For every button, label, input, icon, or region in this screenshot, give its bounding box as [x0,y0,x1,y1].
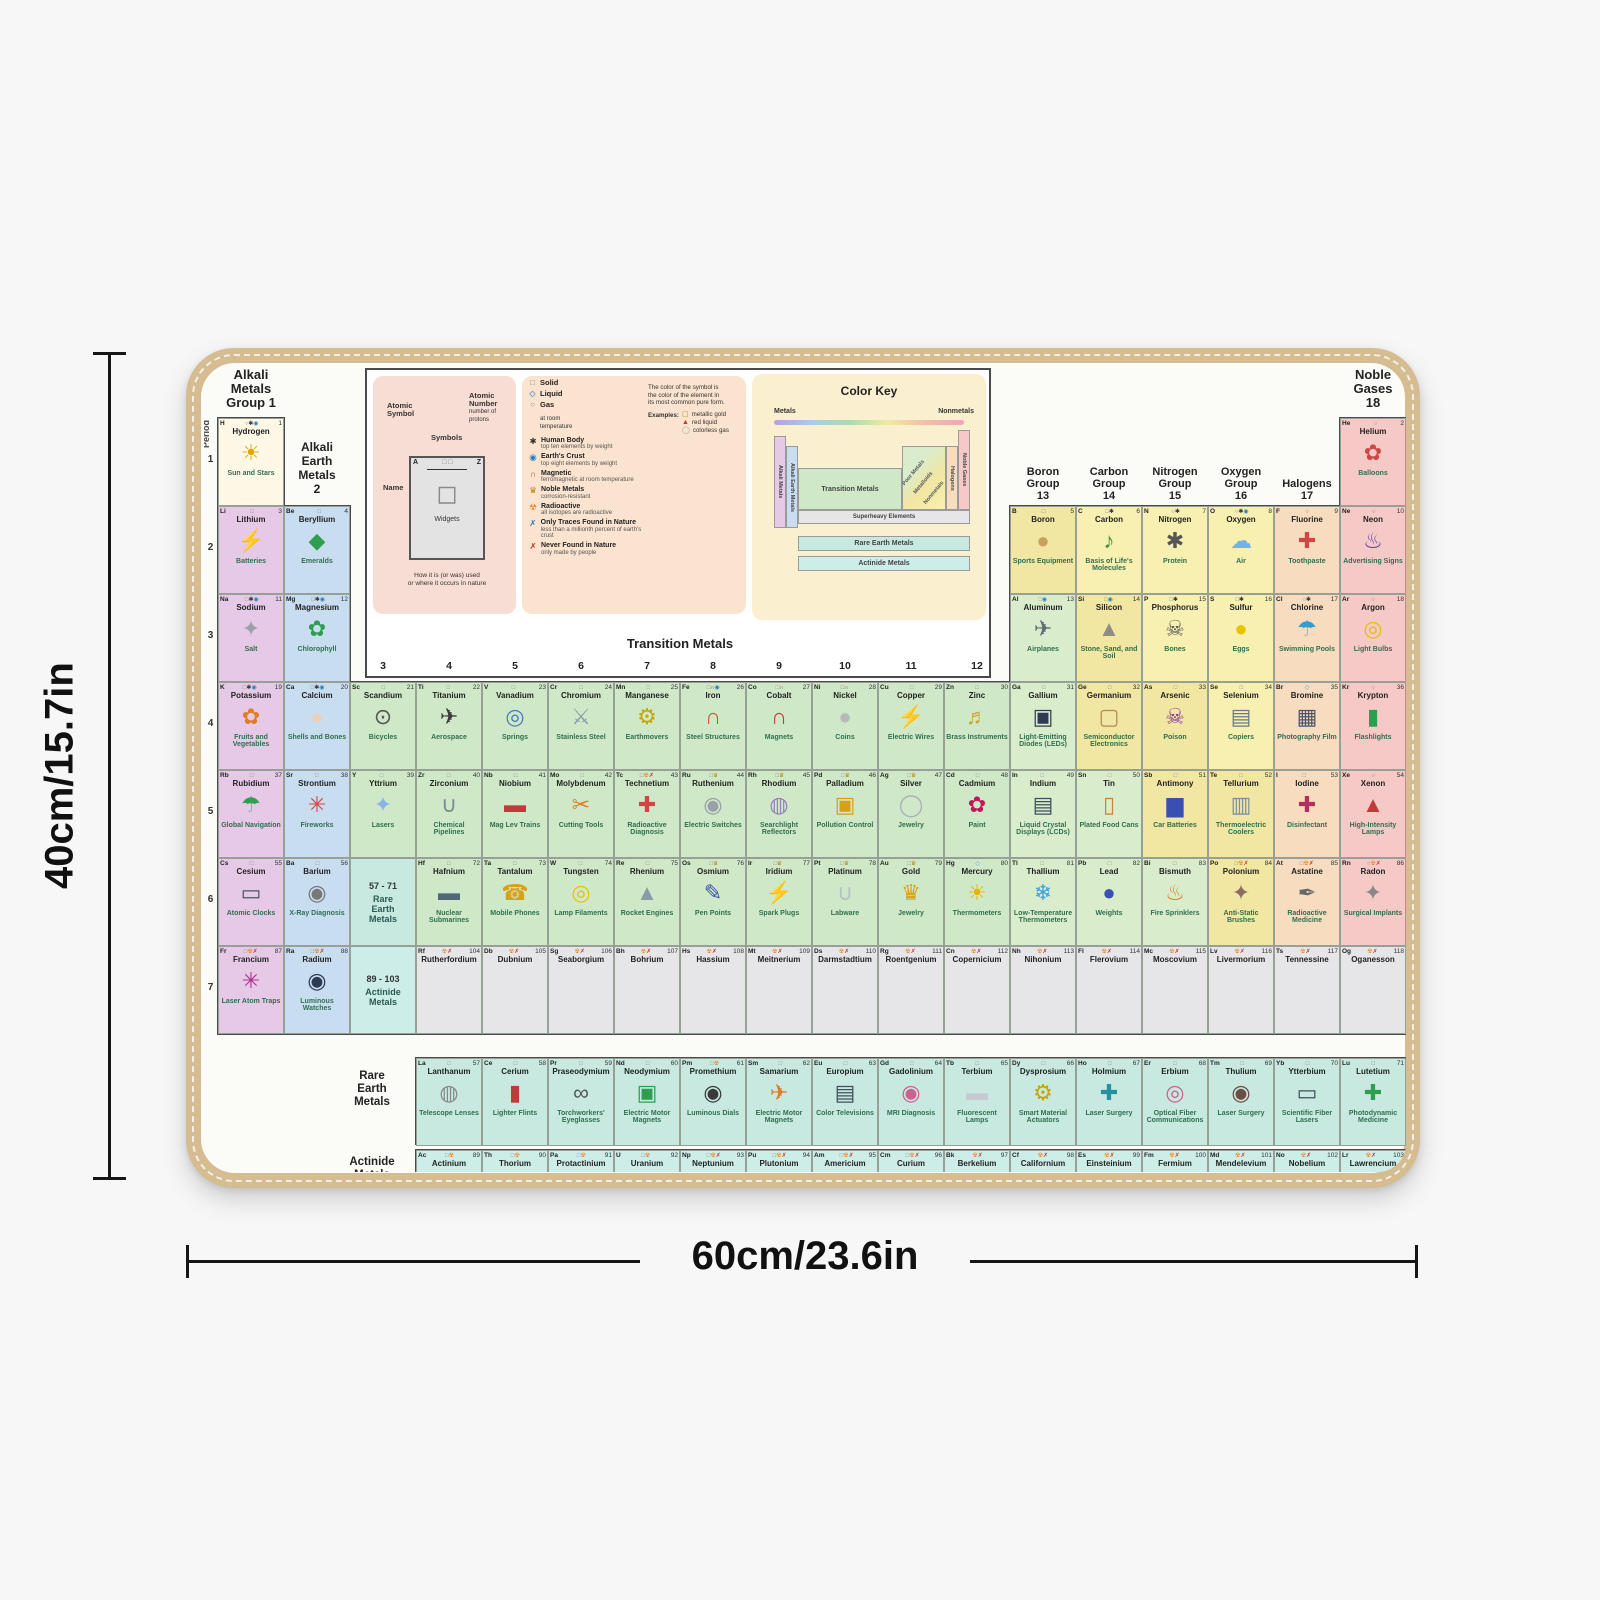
element-cell-Pm: Pm□☢61Promethium◉Luminous Dials [680,1058,746,1146]
ck-superheavy: Superheavy Elements [798,510,970,524]
element-picture-As: ☠ [1144,701,1206,733]
element-cell-Fm: Fm☢✗100Fermium▯ [1142,1150,1208,1172]
solid-icon: □ [528,378,537,387]
element-cell-Am: Am□☢✗95Americium▤ [812,1150,878,1172]
actinide-side-label: Actinide Metals [332,1156,412,1172]
atomic-symbol-label: Atomic Symbol [387,402,414,417]
element-cell-Rf: Rf☢✗104Rutherfordium [416,946,482,1034]
legend-item-6: ✗Never Found in Natureonly made by peopl… [528,542,652,556]
element-picture-Xe: ▲ [1342,789,1404,821]
range-cell-lan: 57 - 71Rare Earth Metals [350,858,416,946]
element-cell-Gd: Gd□64Gadolinium◉MRI Diagnosis [878,1058,944,1146]
element-picture-P: ☠ [1144,613,1206,645]
element-cell-He: He○2Helium✿Balloons [1340,418,1406,506]
element-cell-Db: Db☢✗105Dubnium [482,946,548,1034]
element-cell-Ga: Ga□31Gallium▣Light-Emitting Diodes (LEDs… [1010,682,1076,770]
element-cell-Ni: Ni□∩28Nickel●Coins [812,682,878,770]
liquid-icon: ◇ [528,389,537,398]
element-cell-Sr: Sr□38Strontium✳Fireworks [284,770,350,858]
element-picture-Sn: ▯ [1078,789,1140,821]
element-picture-Nb: ▬ [484,789,546,821]
element-cell-Md: Md☢✗101Mendelevium▯ [1208,1150,1274,1172]
element-picture-Cf: ▲ [1012,1169,1074,1173]
transition-metals-label: Transition Metals [520,636,840,651]
element-picture-Yb: ▭ [1276,1077,1338,1109]
element-picture-Co: ∩ [748,701,810,733]
element-cell-Tm: Tm□69Thulium◉Laser Surgery [1208,1058,1274,1146]
element-cell-Rh: Rh□♛45Rhodium◍Searchlight Reflectors [746,770,812,858]
element-cell-Yb: Yb□70Ytterbium▭Scientific Fiber Lasers [1274,1058,1340,1146]
height-dimension-cap-top [93,352,126,355]
element-picture-Kr: ▮ [1342,701,1404,733]
element-cell-Co: Co□∩27Cobalt∩Magnets [746,682,812,770]
legend-item-icon: ♛ [528,486,538,500]
period-number-1: 1 [204,454,217,465]
element-cell-Sc: Sc□21Scandium⊙Bicycles [350,682,416,770]
element-cell-Sm: Sm□62Samarium✈Electric Motor Magnets [746,1058,812,1146]
element-picture-Al: ✈ [1012,613,1074,645]
element-cell-N: N○✱7Nitrogen✱Protein [1142,506,1208,594]
element-cell-Es: Es☢✗99Einsteinium▯ [1076,1150,1142,1172]
color-key-metals: Metals [774,408,796,415]
group-number-9: 9 [746,660,812,672]
group-number-11: 11 [878,660,944,672]
element-cell-Ru: Ru□♛44Ruthenium◉Electric Switches [680,770,746,858]
group-number-7: 7 [614,660,680,672]
element-picture-Cu: ⚡ [880,701,942,733]
element-cell-Cf: Cf☢✗98Californium▲ [1010,1150,1076,1172]
element-cell-Cl: Cl○✱17Chlorine☂Swimming Pools [1274,594,1340,682]
group-number-6: 6 [548,660,614,672]
element-cell-Pb: Pb□82Lead●Weights [1076,858,1142,946]
color-key-title: Color Key [752,384,986,398]
group-header-13: Boron Group 13 [1010,450,1076,502]
element-picture-Ne: ♨ [1342,525,1404,557]
element-picture-S: ● [1210,613,1272,645]
element-picture-Tc: ✚ [616,789,678,821]
element-cell-Rn: Rn○☢✗86Radon✦Surgical Implants [1340,858,1406,946]
element-picture-Pu: ☁ [748,1169,810,1173]
element-cell-Se: Se□34Selenium▤Copiers [1208,682,1274,770]
element-picture-Ni: ● [814,701,876,733]
element-cell-U: U□☢92Uranium▯ [614,1150,680,1172]
element-cell-Lu: Lu□71Lutetium✚Photodynamic Medicine [1340,1058,1406,1146]
color-key-box: Color Key Metals Nonmetals Alkali Metals… [752,374,986,620]
element-picture-Re: ▲ [616,877,678,909]
ck-actinide: Actinide Metals [798,556,970,571]
element-cell-K: K□✱◉19Potassium✿Fruits and Vegetables [218,682,284,770]
element-picture-Ba: ◉ [286,877,348,909]
element-cell-Be: Be□4Beryllium◆Emeralds [284,506,350,594]
periodic-table: Alkali Metals Group 1 Alkali Earth Metal… [204,364,1406,1172]
element-cell-Mo: Mo□42Molybdenum✂Cutting Tools [548,770,614,858]
legend-item-icon: ☢ [528,503,538,517]
element-picture-B: ● [1012,525,1074,557]
height-dimension-label: 40cm/15.7in [34,616,86,936]
element-picture-Tm: ◉ [1210,1077,1272,1109]
legend-item-4: ☢Radioactiveall isotopes are radioactive [528,503,652,517]
element-cell-F: F○9Fluorine✚Toothpaste [1274,506,1340,594]
element-cell-H: H○✱◉1Hydrogen☀Sun and Stars [218,418,284,506]
color-key-nonmetals: Nonmetals [938,408,974,415]
element-picture-Te: ▥ [1210,789,1272,821]
element-picture-At: ✒ [1276,877,1338,909]
alkali-metals-header: Alkali Metals Group 1 [211,368,291,410]
element-cell-Pt: Pt□♛78Platinum∪Labware [812,858,878,946]
element-picture-Ar: ◎ [1342,613,1404,645]
element-cell-Te: Te□52Tellurium▥Thermoelectric Coolers [1208,770,1274,858]
element-picture-Zr: ∪ [418,789,480,821]
element-cell-Ce: Ce□58Cerium▮Lighter Flints [482,1058,548,1146]
element-picture-Li: ⚡ [220,525,282,557]
legend-item-5: ✗Only Traces Found in Natureless than a … [528,519,652,540]
symbol-color-examples: ▢metallic gold▲red liquid◯colorless gas [682,411,729,435]
legend-item-1: ◉Earth's Crusttop eight elements by weig… [528,453,652,467]
element-picture-In: ▤ [1012,789,1074,821]
element-cell-Mc: Mc☢✗115Moscovium [1142,946,1208,1034]
ck-halogen: Halogens [946,446,958,510]
element-picture-Es: ▯ [1078,1169,1140,1173]
element-picture-Ca: ● [286,701,348,733]
element-picture-La: ◍ [418,1077,480,1109]
element-picture-Fr: ✳ [220,965,282,997]
element-picture-Fm: ▯ [1144,1169,1206,1173]
gas-sub: at room temperature [540,416,572,431]
element-cell-Xe: Xe○54Xenon▲High-Intensity Lamps [1340,770,1406,858]
element-cell-Pu: Pu□☢✗94Plutonium☁ [746,1150,812,1172]
element-cell-Bh: Bh☢✗107Bohrium [614,946,680,1034]
ck-noble: Noble Gases [958,430,970,510]
element-cell-Re: Re□75Rhenium▲Rocket Engines [614,858,680,946]
element-cell-Br: Br◇35Bromine▦Photography Film [1274,682,1340,770]
element-picture-C: ♪ [1078,525,1140,557]
element-picture-Ta: ☎ [484,877,546,909]
element-cell-Kr: Kr○36Krypton▮Flashlights [1340,682,1406,770]
element-cell-Y: Y□39Yttrium✦Lasers [350,770,416,858]
element-picture-He: ✿ [1342,437,1404,469]
element-picture-Am: ▤ [814,1169,876,1173]
range-cell-act: 89 - 103Actinide Metals [350,946,416,1034]
element-picture-I: ✚ [1276,789,1338,821]
element-picture-Po: ✦ [1210,877,1272,909]
period-number-5: 5 [204,806,217,817]
element-cell-Hf: Hf□72Hafnium▬Nuclear Submarines [416,858,482,946]
element-cell-Si: Si□◉14Silicon▲Stone, Sand, and Soil [1076,594,1142,682]
examples-label: Examples: [648,412,679,420]
element-cell-Tb: Tb□65Terbium▬Fluorescent Lamps [944,1058,1010,1146]
element-picture-Tb: ▬ [946,1077,1008,1109]
element-picture-Be: ◆ [286,525,348,557]
metals-nonmetals-gradient [774,420,964,425]
element-cell-Og: Og☢✗118Oganesson [1340,946,1406,1034]
symbols-label: Symbols [431,434,462,442]
element-picture-Sm: ✈ [748,1077,810,1109]
element-cell-Cu: Cu□29Copper⚡Electric Wires [878,682,944,770]
element-cell-Lr: Lr☢✗103Lawrencium▯ [1340,1150,1406,1172]
element-picture-Nd: ▣ [616,1077,678,1109]
element-picture-Er: ◎ [1144,1077,1206,1109]
element-cell-Bk: Bk☢✗97Berkelium▯ [944,1150,1010,1172]
element-cell-Os: Os□♛76Osmium✎Pen Points [680,858,746,946]
element-picture-Mg: ✿ [286,613,348,645]
legend-symbol-box: Atomic Symbol Symbols Atomic Number numb… [373,376,516,614]
width-dimension-label: 60cm/23.6in [640,1234,970,1279]
product-photo: 40cm/15.7in 60cm/23.6in Alkali Metals Gr… [0,0,1600,1600]
color-example-1: ▲red liquid [682,419,729,427]
element-cell-Pr: Pr□59Praseodymium∞Torchworkers' Eyeglass… [548,1058,614,1146]
element-cell-C: C□✱6Carbon♪Basis of Life's Molecules [1076,506,1142,594]
element-picture-Ag: ◯ [880,789,942,821]
element-cell-Mt: Mt☢✗109Meitnerium [746,946,812,1034]
element-cell-Fe: Fe□∩◉26Iron∩Steel Structures [680,682,746,770]
element-cell-Ds: Ds☢✗110Darmstadtium [812,946,878,1034]
legend-mini-element-cell: A □ □ Z ◻ Widgets [409,456,485,560]
liquid-label: Liquid [540,389,563,398]
element-cell-Ho: Ho□67Holmium✚Laser Surgery [1076,1058,1142,1146]
legend-item-icon: ✗ [528,542,538,556]
group-number-5: 5 [482,660,548,672]
element-cell-Al: Al□◉13Aluminum✈Airplanes [1010,594,1076,682]
element-cell-Mg: Mg□✱◉12Magnesium✿Chlorophyll [284,594,350,682]
legend-item-0: ✱Human Bodytop ten elements by weight [528,437,652,451]
element-picture-Ac: ✦ [418,1169,480,1173]
alkali-earth-header: Alkali Earth Metals 2 [277,440,357,496]
element-picture-Th: ▲ [484,1169,546,1173]
element-picture-Au: ♛ [880,877,942,909]
period-number-4: 4 [204,718,217,729]
element-cell-At: At□☢✗85Astatine✒Radioactive Medicine [1274,858,1340,946]
noble-gases-header: Noble Gases 18 [1333,368,1406,410]
element-cell-Fl: Fl☢✗114Flerovium [1076,946,1142,1034]
element-picture-Lr: ▯ [1342,1169,1404,1173]
element-cell-Zr: Zr□40Zirconium∪Chemical Pipelines [416,770,482,858]
element-cell-Ts: Ts☢✗117Tennessine [1274,946,1340,1034]
gas-label: Gas [540,400,554,409]
element-picture-Pt: ∪ [814,877,876,909]
element-cell-Pd: Pd□♛46Palladium▣Pollution Control [812,770,878,858]
element-picture-Tl: ❄ [1012,877,1074,909]
element-cell-Cn: Cn☢✗112Copernicium [944,946,1010,1034]
width-dimension-cap-left [186,1245,189,1278]
element-picture-Br: ▦ [1276,701,1338,733]
element-picture-U: ▯ [616,1169,678,1173]
height-dimension-line [108,352,111,1180]
element-picture-Cl: ☂ [1276,613,1338,645]
element-picture-Sc: ⊙ [352,701,414,733]
element-picture-Os: ✎ [682,877,744,909]
group-header-16: Oxygen Group 16 [1208,450,1274,502]
element-picture-Np: ▯ [682,1169,744,1173]
element-picture-Pb: ● [1078,877,1140,909]
element-picture-N: ✱ [1144,525,1206,557]
element-picture-Eu: ▤ [814,1077,876,1109]
element-cell-Hg: Hg◇80Mercury☀Thermometers [944,858,1010,946]
width-dimension-cap-right [1415,1245,1418,1278]
ck-transition: Transition Metals [798,468,902,510]
element-picture-Sb: ▆ [1144,789,1206,821]
group-header-14: Carbon Group 14 [1076,450,1142,502]
element-picture-Cr: ⚔ [550,701,612,733]
element-picture-Rh: ◍ [748,789,810,821]
element-cell-Cs: Cs□55Cesium▭Atomic Clocks [218,858,284,946]
element-cell-Sg: Sg☢✗106Seaborgium [548,946,614,1034]
group-number-4: 4 [416,660,482,672]
element-cell-La: La□57Lanthanum◍Telescope Lenses [416,1058,482,1146]
element-cell-Pa: Pa□☢91Protactinium▯ [548,1150,614,1172]
ck-rare: Rare Earth Metals [798,536,970,551]
legend-item-icon: ✗ [528,519,538,540]
element-picture-Cd: ✿ [946,789,1008,821]
element-cell-Ge: Ge□32Germanium▢Semiconductor Electronics [1076,682,1142,770]
color-example-2: ◯colorless gas [682,427,729,435]
element-picture-Dy: ⚙ [1012,1077,1074,1109]
element-cell-O: O○✱◉8Oxygen☁Air [1208,506,1274,594]
element-cell-Th: Th□☢90Thorium▲ [482,1150,548,1172]
element-cell-Lv: Lv☢✗116Livermorium [1208,946,1274,1034]
legend-item-2: ∩Magneticferromagnetic at room temperatu… [528,470,652,484]
element-cell-I: I□53Iodine✚Disinfectant [1274,770,1340,858]
element-picture-Ru: ◉ [682,789,744,821]
element-cell-Rg: Rg☢✗111Roentgenium [878,946,944,1034]
element-cell-Cr: Cr□24Chromium⚔Stainless Steel [548,682,614,770]
element-cell-Li: Li□3Lithium⚡Batteries [218,506,284,594]
element-cell-In: In□49Indium▤Liquid Crystal Displays (LCD… [1010,770,1076,858]
atomic-number-sub: number of protons [469,409,496,424]
element-picture-Lu: ✚ [1342,1077,1404,1109]
element-cell-Rb: Rb□37Rubidium☂Global Navigation [218,770,284,858]
legend-states-box: □Solid ◇Liquid ○Gas at room temperature … [522,376,746,614]
element-cell-Ne: Ne○10Neon♨Advertising Signs [1340,506,1406,594]
ck-alkaline: Alkali Earth Metals [786,446,798,528]
ck-alkali: Alkali Metals [774,436,786,528]
element-picture-Ce: ▮ [484,1077,546,1109]
group-number-10: 10 [812,660,878,672]
element-cell-Nd: Nd□60Neodymium▣Electric Motor Magnets [614,1058,680,1146]
mini-cell-z: Z [477,459,481,466]
element-picture-W: ◎ [550,877,612,909]
element-cell-Ar: Ar○18Argon◎Light Bulbs [1340,594,1406,682]
element-cell-Bi: Bi□83Bismuth♨Fire Sprinklers [1142,858,1208,946]
element-picture-Md: ▯ [1210,1169,1272,1173]
element-cell-Nh: Nh☢✗113Nihonium [1010,946,1076,1034]
element-picture-Si: ▲ [1078,613,1140,645]
mini-cell-widgets: Widgets [411,516,483,523]
element-picture-Na: ✦ [220,613,282,645]
element-cell-V: V□23Vanadium◎Springs [482,682,548,770]
element-cell-P: P□✱15Phosphorus☠Bones [1142,594,1208,682]
name-label: Name [383,484,403,492]
element-picture-Hf: ▬ [418,877,480,909]
element-cell-Mn: Mn□25Manganese⚙Earthmovers [614,682,680,770]
element-picture-Bk: ▯ [946,1169,1008,1173]
element-picture-Sr: ✳ [286,789,348,821]
element-picture-Cs: ▭ [220,877,282,909]
element-cell-Fr: Fr□☢✗87Francium✳Laser Atom Traps [218,946,284,1034]
legend-item-icon: ∩ [528,470,538,484]
element-cell-Cd: Cd□48Cadmium✿Paint [944,770,1010,858]
element-picture-Se: ▤ [1210,701,1272,733]
element-cell-B: B□5Boron●Sports Equipment [1010,506,1076,594]
group-header-17: Halogens 17 [1274,450,1340,502]
group-number-12: 12 [944,660,1010,672]
group-number-3: 3 [350,660,416,672]
element-cell-Na: Na□✱◉11Sodium✦Salt [218,594,284,682]
element-cell-Eu: Eu□63Europium▤Color Televisions [812,1058,878,1146]
element-picture-Zn: ♬ [946,701,1008,733]
element-cell-Zn: Zn□30Zinc♬Brass Instruments [944,682,1010,770]
element-picture-Rb: ☂ [220,789,282,821]
element-cell-Tc: Tc□☢✗43Technetium✚Radioactive Diagnosis [614,770,680,858]
element-cell-Er: Er□68Erbium◎Optical Fiber Communications [1142,1058,1208,1146]
element-picture-V: ◎ [484,701,546,733]
element-picture-Pm: ◉ [682,1077,744,1109]
element-picture-Bi: ♨ [1144,877,1206,909]
element-cell-Ta: Ta□73Tantalum☎Mobile Phones [482,858,548,946]
element-picture-Ti: ✈ [418,701,480,733]
element-cell-Tl: Tl□81Thallium❄Low-Temperature Thermomete… [1010,858,1076,946]
element-picture-Ga: ▣ [1012,701,1074,733]
mini-cell-cube-icon: ◻ [411,470,483,516]
element-picture-Hg: ☀ [946,877,1008,909]
element-cell-Sn: Sn□50Tin▯Plated Food Cans [1076,770,1142,858]
group-header-15: Nitrogen Group 15 [1142,450,1208,502]
element-picture-F: ✚ [1276,525,1338,557]
element-picture-Cm: ▬ [880,1169,942,1173]
element-cell-Ir: Ir□♛77Iridium⚡Spark Plugs [746,858,812,946]
symbol-color-note: The color of the symbol is the color of … [648,384,744,407]
color-example-0: ▢metallic gold [682,411,729,419]
element-cell-As: As□33Arsenic☠Poison [1142,682,1208,770]
periodic-table-print: Alkali Metals Group 1 Alkali Earth Metal… [204,364,1406,1172]
element-cell-No: No☢✗102Nobelium▯ [1274,1150,1340,1172]
element-cell-Np: Np□☢✗93Neptunium▯ [680,1150,746,1172]
legend-symbol-caption: How it is (or was) used or where it occu… [387,572,507,587]
element-picture-Y: ✦ [352,789,414,821]
element-cell-S: S□✱16Sulfur●Eggs [1208,594,1274,682]
element-picture-No: ▯ [1276,1169,1338,1173]
period-number-3: 3 [204,630,217,641]
element-picture-K: ✿ [220,701,282,733]
gas-icon: ○ [528,400,537,409]
element-cell-Ti: Ti□22Titanium✈Aerospace [416,682,482,770]
element-picture-Ir: ⚡ [748,877,810,909]
legend-item-icon: ◉ [528,453,538,467]
element-picture-Ho: ✚ [1078,1077,1140,1109]
element-cell-Dy: Dy□66Dysprosium⚙Smart Material Actuators [1010,1058,1076,1146]
element-cell-Nb: Nb□41Niobium▬Mag Lev Trains [482,770,548,858]
legend-symbol-items: ✱Human Bodytop ten elements by weight◉Ea… [522,434,652,556]
legend-item-3: ♛Noble Metalscorrosion-resistant [528,486,652,500]
element-cell-Ag: Ag□♛47Silver◯Jewelry [878,770,944,858]
element-picture-Mo: ✂ [550,789,612,821]
element-cell-Ba: Ba□56Barium◉X-Ray Diagnosis [284,858,350,946]
period-number-6: 6 [204,894,217,905]
element-picture-Rn: ✦ [1342,877,1404,909]
mini-cell-a: A [413,459,418,466]
element-cell-Ac: Ac□☢89Actinium✦ [416,1150,482,1172]
element-picture-O: ☁ [1210,525,1272,557]
element-picture-Ge: ▢ [1078,701,1140,733]
group-number-8: 8 [680,660,746,672]
element-cell-Hs: Hs☢✗108Hassium [680,946,746,1034]
element-picture-H: ☀ [220,437,282,469]
legend-item-icon: ✱ [528,437,538,451]
element-picture-Pa: ▯ [550,1169,612,1173]
period-number-7: 7 [204,982,217,993]
element-cell-Ra: Ra□☢✗88Radium◉Luminous Watches [284,946,350,1034]
element-cell-Au: Au□♛79Gold♛Jewelry [878,858,944,946]
rare-earth-side-label: Rare Earth Metals [332,1070,412,1109]
